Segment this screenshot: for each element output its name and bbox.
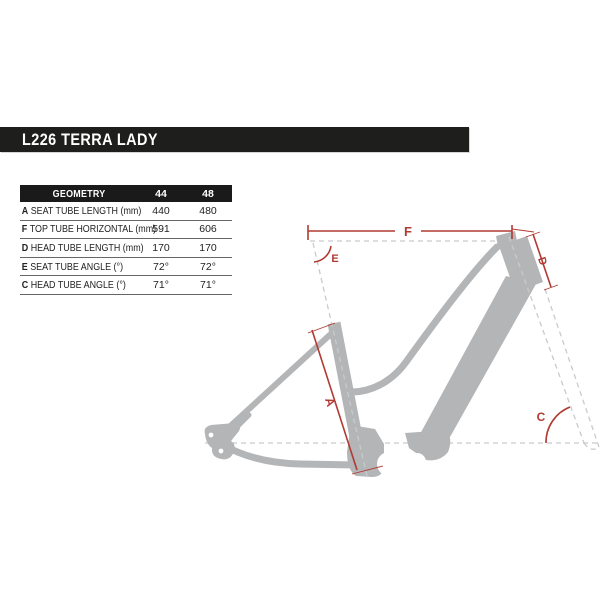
spec-sheet: L226 TERRA LADY GEOMETRY 44 48 ASEAT TUB… [0, 0, 600, 600]
motor-arch-cutout [377, 452, 401, 476]
dropout-hole [209, 433, 214, 438]
dimension-label-d: D [535, 256, 549, 267]
head-tube-axis-end-cap [584, 443, 599, 449]
chain-stay-shape [223, 445, 356, 465]
dimension-f-extension [512, 229, 534, 232]
motor-arch-cutout [408, 453, 426, 471]
dimension-c: C [537, 407, 570, 443]
dimension-label-f: F [404, 224, 412, 239]
head-tube-edge-dashed-line [545, 289, 599, 447]
dimension-label-c: C [537, 410, 546, 424]
down-tube-shape [413, 276, 536, 447]
angle-arc-e [314, 246, 331, 262]
frame-shapes [205, 231, 543, 477]
dropout-hole [219, 449, 224, 454]
bike-frame-diagram: F E D A C [0, 0, 600, 600]
dimension-label-a: A [322, 396, 338, 409]
angle-arc-c [546, 407, 570, 443]
dimension-label-e: E [331, 253, 338, 265]
